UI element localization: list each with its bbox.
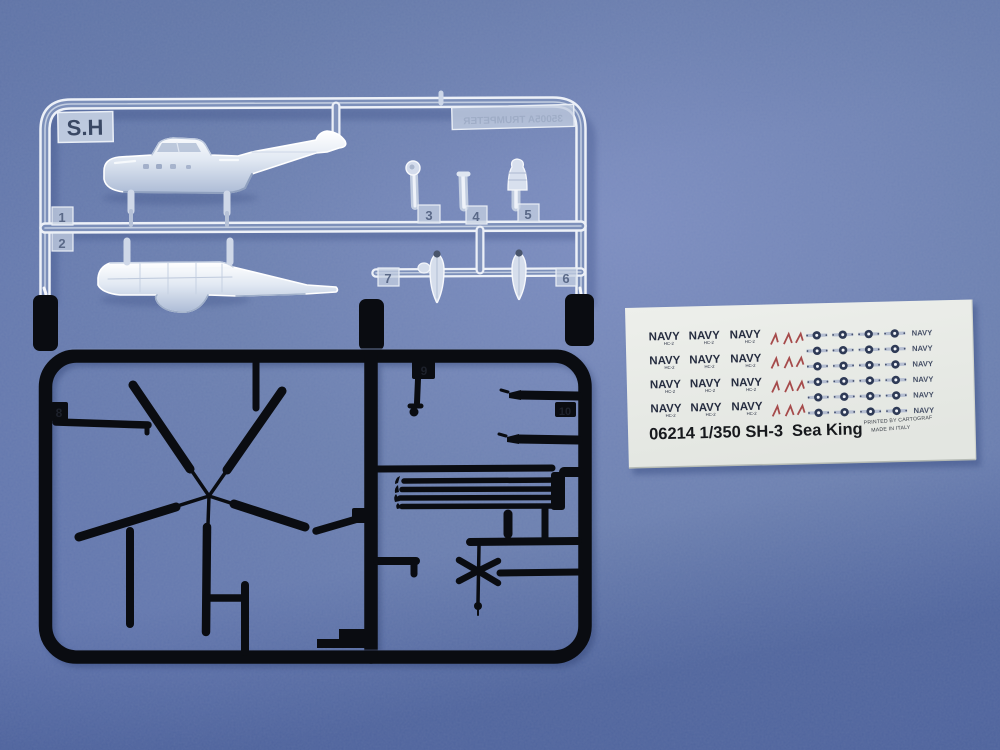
svg-text:6: 6 xyxy=(562,271,569,286)
svg-text:10: 10 xyxy=(559,406,571,418)
svg-text:HC-2: HC-2 xyxy=(666,413,677,418)
svg-text:1: 1 xyxy=(58,210,65,225)
svg-text:HC-2: HC-2 xyxy=(704,340,715,345)
svg-text:HC-2: HC-2 xyxy=(746,387,757,392)
svg-text:HC-2: HC-2 xyxy=(745,363,756,368)
svg-text:HC-2: HC-2 xyxy=(706,412,717,417)
svg-text:2: 2 xyxy=(58,236,65,251)
svg-text:HC-2: HC-2 xyxy=(705,388,716,393)
svg-text:HC-2: HC-2 xyxy=(664,341,675,346)
svg-text:5: 5 xyxy=(524,207,531,222)
svg-text:NAVY: NAVY xyxy=(913,406,934,415)
svg-text:S.H: S.H xyxy=(66,115,103,141)
svg-text:NAVY: NAVY xyxy=(912,344,933,353)
svg-text:4: 4 xyxy=(472,209,480,224)
svg-text:HC-2: HC-2 xyxy=(704,364,715,369)
svg-text:NAVY: NAVY xyxy=(912,328,933,337)
svg-text:HC-2: HC-2 xyxy=(745,339,756,344)
svg-text:NAVY: NAVY xyxy=(912,359,933,368)
svg-text:7: 7 xyxy=(384,271,391,286)
svg-text:HC-2: HC-2 xyxy=(664,365,675,370)
svg-text:NAVY: NAVY xyxy=(913,390,934,399)
svg-text:NAVY: NAVY xyxy=(913,375,934,384)
svg-text:8: 8 xyxy=(56,406,63,420)
svg-text:HC-2: HC-2 xyxy=(747,411,758,416)
svg-text:3: 3 xyxy=(425,208,432,223)
svg-text:06214 1/350 SH-3: 06214 1/350 SH-3 xyxy=(649,422,783,443)
svg-text:Sea King: Sea King xyxy=(792,420,863,440)
svg-text:HC-2: HC-2 xyxy=(665,389,676,394)
svg-text:9: 9 xyxy=(421,364,428,378)
